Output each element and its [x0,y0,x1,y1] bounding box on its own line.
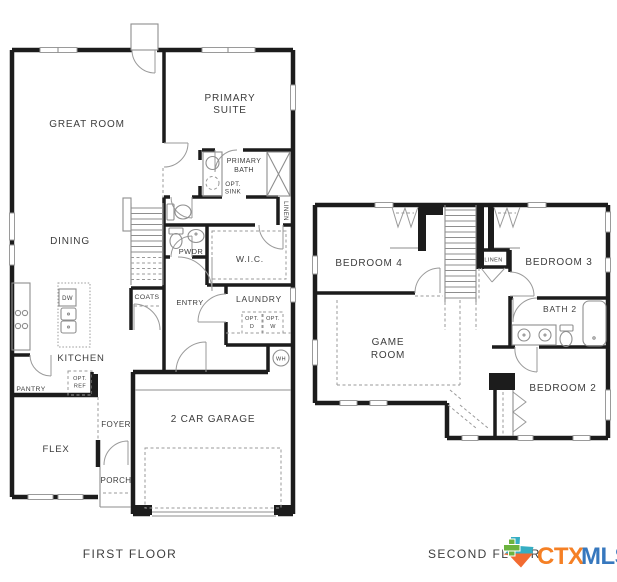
porch-outline [100,467,131,507]
linen-door [481,268,505,282]
sink-icon [61,308,76,320]
label-dining: DINING [50,236,90,247]
first-floor-caption: FIRST FLOOR [83,547,178,561]
label-primary-bath-1: PRIMARY [227,158,262,165]
label-bath-2: BATH 2 [543,304,577,314]
label-primary-suite-1: PRIMARY [205,93,256,104]
label-opt-d-2: D [250,324,254,330]
closet-wall-b3 [488,205,494,251]
second-floor-exterior-walls [315,205,608,438]
label-wh: WH [276,357,286,363]
watermark-ctx-text: CTX [537,543,584,570]
second-floor-windows [313,203,611,441]
label-bedroom-3: BEDROOM 3 [525,257,592,268]
range-icon [15,310,20,315]
kitchen-island [58,283,90,347]
bifold-doors-bedroom2 [513,392,526,432]
garage-slab [145,448,281,508]
label-opt-ref-1: OPT. [73,376,87,382]
first-floor-plan: GREAT ROOM PRIMARY SUITE DINING KITCHEN … [10,24,296,561]
label-coats: COATS [135,294,160,301]
watermark-mls-text: MLS [581,543,617,570]
first-floor-windows [10,48,296,500]
second-floor-interior-walls [315,250,608,438]
label-opt-d-1: OPT. [245,316,259,322]
stair-top-wall [426,205,443,215]
ctxmls-watermark: CTX MLS [504,537,617,570]
vanity [512,325,556,345]
garage-corner-block-right [274,505,293,515]
floor-plan-image: GREAT ROOM PRIMARY SUITE DINING KITCHEN … [0,0,617,582]
kitchen-counter [12,283,30,350]
sink-icon [518,329,530,341]
label-opt-w-2: W [270,324,276,330]
label-opt-w-1: OPT. [266,316,280,322]
texas-logo-icon [504,537,534,568]
label-game-room-1: GAME [372,337,405,348]
label-linen-2f: LINEN [484,258,502,264]
stair-wall-left [418,205,426,251]
label-bedroom-4: BEDROOM 4 [335,258,402,269]
label-game-room-2: ROOM [371,350,405,361]
label-opt-sink-2: SINK [225,189,242,196]
bifold-doors-bedroom3 [494,207,520,227]
label-dw: DW [62,296,73,302]
back-door [131,24,158,73]
garage-details [135,390,291,508]
optional-sink-icon [206,177,219,190]
label-entry: ENTRY [176,298,203,307]
label-opt-sink-1: OPT. [225,181,241,188]
label-great-room: GREAT ROOM [49,119,124,130]
stairs-first-floor [123,198,163,285]
label-pantry: PANTRY [16,386,45,393]
label-opt-ref-2: REF [74,384,86,390]
label-wic: W.I.C. [236,254,264,264]
second-floor-plan: BEDROOM 4 BEDROOM 3 LINEN BATH 2 GAME RO… [313,203,611,562]
label-garage: 2 CAR GARAGE [171,414,256,425]
label-flex: FLEX [43,444,70,455]
hall-wall-chunk [489,373,515,390]
label-primary-suite-2: SUITE [213,105,246,116]
floor-plan-page: GREAT ROOM PRIMARY SUITE DINING KITCHEN … [0,0,617,582]
label-linen-1f: LINEN [282,201,288,221]
garage-corner-block-left [133,505,152,515]
label-porch: PORCH [101,476,132,485]
sink-icon [539,329,551,341]
toilet-icon [560,325,573,331]
label-kitchen: KITCHEN [57,353,104,364]
label-laundry: LAUNDRY [236,294,282,304]
garage-door-opening [150,509,278,519]
label-pwdr: PWDR [179,247,204,256]
label-primary-bath-2: BATH [234,167,254,174]
bifold-doors-bedroom4 [392,207,418,227]
label-foyer: FOYER [101,420,131,429]
label-bedroom-2: BEDROOM 2 [529,383,596,394]
